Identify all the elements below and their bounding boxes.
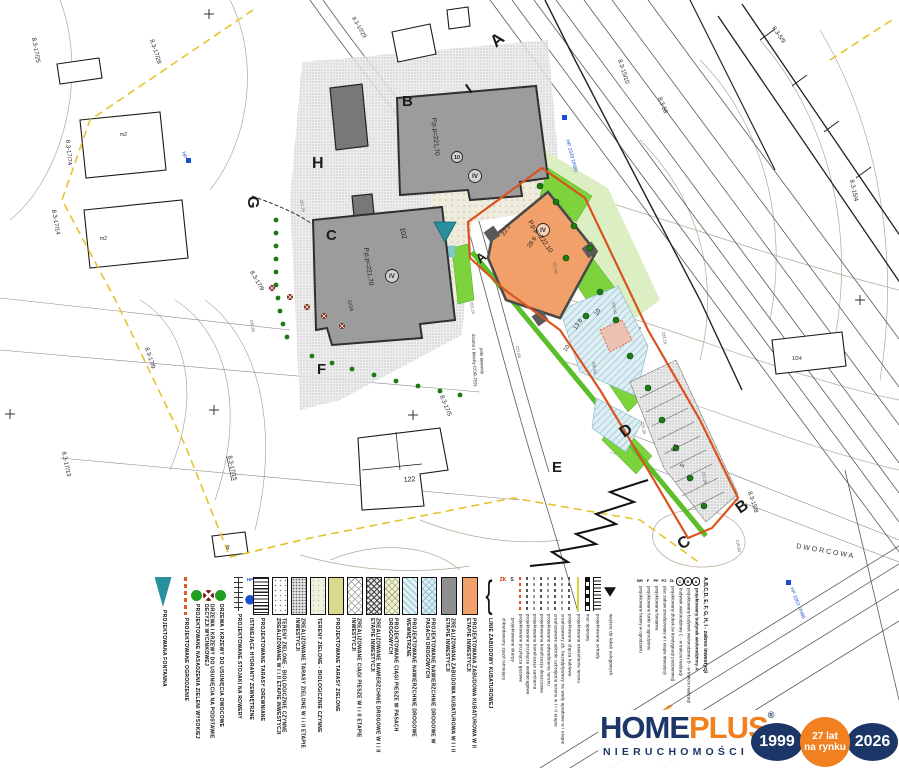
map-label: 8.3-17/25: [30, 37, 40, 64]
sym-bracket-icon: {: [485, 577, 494, 615]
sym-fountain-icon: [155, 577, 172, 607]
legend-label: PROJEKTOWANE TARASY ZIELONE: [333, 618, 339, 760]
legend-label: TERENY ZIELONE - BIOLOGICZNIE CZYNNE ZRE…: [274, 618, 285, 760]
legend-label: projektowane oświetlenie terenu: [576, 614, 581, 764]
map-label: B: [402, 93, 413, 110]
legend-label: ISTNIEJĄCE HYDRANTY ZEWNĘTRZNE: [247, 618, 253, 760]
legend-item: DRZEWA I KRZEWY DO USUNIĘCIA OWOCOWE: [212, 577, 228, 746]
map-label: m2: [120, 132, 127, 138]
legend-item: PROJEKTOWANA ZABUDOWA KUBATUROWA W II ET…: [462, 577, 478, 760]
map-label: IV: [540, 228, 546, 234]
legend-building-symbol: BR: [637, 577, 644, 584]
sw-icon: [402, 577, 418, 615]
legend-label: PROJEKTOWANE STOJAKI NA ROWERY: [235, 614, 241, 756]
map-label: 222.10: [469, 301, 476, 315]
sw-icon: [291, 577, 307, 615]
map-label: 8.3-1/229: [350, 16, 367, 39]
sym-dash-icon: [568, 577, 570, 611]
map-label: ściana z blachy COR-TEN: [471, 334, 478, 387]
map-label: 8.3-15/10: [616, 59, 630, 86]
legend-building-symbol: B: [684, 577, 693, 586]
legend-building-symbol: F: [645, 577, 652, 584]
map-label: 10: [454, 155, 460, 161]
legend-item: ZREALIZOWANE TARASY ZIELONE W I i II ETA…: [291, 577, 307, 760]
site-boundary-dashed-2: [830, 18, 895, 60]
legend-label: projektowane złącza kablowe: [567, 614, 572, 764]
legend-label: LINIE ZABUDOWY KUBATUROWEJ: [486, 618, 492, 760]
legend-item: TERENY ZIELONE - BIOLOGICZNIE CZYNNE: [310, 577, 326, 760]
sw-icon: [328, 577, 344, 615]
legend-item: ZREALIZOWANA ZABUDOWA KUBATUROWA W I i I…: [441, 577, 457, 760]
legend-item: PROJEKTOWANE NAWIERZCHNIE DROGOWE W PASA…: [421, 577, 437, 760]
map-label: 8.3-17/15: [226, 455, 237, 482]
sym-tree-fruit-icon: [215, 590, 226, 601]
parking-area: [630, 360, 738, 522]
registered-icon: ®: [768, 710, 774, 720]
legend-label: PROJEKTOWANE TARASY DREWNIANE: [258, 618, 264, 760]
boundary-letter: H: [312, 155, 324, 172]
legend-item: ZREALIZOWANE CIĄGI PIESZE W I i II ETAPI…: [347, 577, 363, 760]
legend-building-symbol: A: [692, 577, 701, 586]
sw-icon: [441, 577, 457, 615]
map-label: 1/24: [792, 356, 802, 362]
legend-item: TERENY ZIELONE - BIOLOGICZNIE CZYNNE ZRE…: [272, 577, 288, 760]
legend-label: PROJEKTOWANA ZABUDOWA KUBATUROWA W II ET…: [464, 618, 475, 760]
map-label: pole lawendy: [479, 348, 485, 375]
sym-fence-icon: [184, 577, 187, 615]
legend-label: PROJEKTOWANA FONTANNA: [160, 610, 166, 752]
zigzag-line: [530, 480, 648, 566]
legend-label: PROJEKTOWANE NAWIERZCHNIE DROGOWE W PASA…: [423, 618, 434, 760]
sw-icon: [384, 577, 400, 615]
map-label: 222.35: [640, 421, 647, 435]
map-label: 8.3-15/4: [848, 179, 859, 202]
badge-year-end: 2026: [847, 723, 898, 761]
legend-label: mur oporowy: [585, 614, 590, 764]
map-label: 8.3-17/13: [60, 451, 71, 478]
sw-icon: [272, 577, 288, 615]
badge-anniversary-line1: 27 lat: [812, 731, 838, 742]
sym-tri-icon: [604, 577, 616, 611]
map-label: C: [326, 227, 337, 244]
brand-subtitle: NIERUCHOMOŚCI: [603, 746, 748, 758]
map-label: m2: [100, 236, 107, 242]
legend-label: ZREALIZOWANE CIĄGI PIESZE W I i II ETAPI…: [349, 618, 360, 760]
legend-label: DRZEWA I KRZEWY DO USUNIĘCIA OWOCOWE: [217, 604, 223, 746]
legend-building-symbol: PF: [653, 577, 660, 584]
badge-anniversary-line2: na rynku: [804, 742, 846, 753]
map-label: 8.3-17/5: [438, 395, 452, 418]
map-label: IV: [389, 274, 395, 280]
sym-scalebar-icon: [585, 577, 590, 611]
map-label: 220.30: [249, 319, 256, 333]
boundary-letter: F: [317, 361, 326, 378]
legend-label: PROJEKTOWANE NASADZENIA ZIELENI WYSOKIEJ: [193, 604, 199, 746]
site-plan-page: 8.3-17/258.3-17/288.3-1/2298.3-17/748.3-…: [0, 0, 899, 768]
sw-icon: [421, 577, 437, 615]
line-yellow-icon: [577, 577, 579, 611]
legend-item: PROJEKTOWANA FONTANNA: [155, 577, 171, 752]
sw-icon: [253, 577, 269, 615]
map-label: 219.80: [735, 539, 742, 553]
map-label: 122: [404, 476, 416, 484]
legend-item: PROJEKTOWANE NAWIERZCHNIE DROGOWE WEWNĘT…: [402, 577, 418, 760]
legend-building-symbol: ŻŁ: [669, 577, 676, 584]
legend-label: PROJEKTOWANE OGRODZENIE: [182, 618, 188, 760]
legend-label: PROJEKTOWANE CIĄGI PIESZE W PASACH DROGO…: [386, 618, 397, 760]
brand-home: HOME: [600, 710, 689, 745]
badge-year-start: 1999: [751, 723, 803, 761]
legend-label: ZREALIZOWANA ZABUDOWA KUBATUROWA W I i I…: [443, 618, 454, 760]
map-label: 8.3-17/9: [143, 347, 156, 370]
sym-ruler-icon: [593, 577, 601, 611]
map-label: 8.3-5/9: [770, 26, 786, 45]
sw-icon: [366, 577, 382, 615]
legend-building-symbol: PZ: [661, 577, 668, 584]
map-label: IV: [472, 174, 478, 180]
legend-label: ZREALIZOWANE NAWIERZCHNIE DROGOWE W I i …: [368, 618, 379, 760]
legend-item: ZREALIZOWANE NAWIERZCHNIE DROGOWE W I i …: [366, 577, 382, 760]
legend-building-symbol: C: [676, 577, 685, 586]
legend-item: PROJEKTOWANE TARASY DREWNIANE: [253, 577, 269, 760]
boundary-letter: E: [552, 459, 562, 476]
map-label: DWORCOWA: [796, 543, 856, 560]
sw-icon: [347, 577, 363, 615]
map-label: 8.3-17/14: [50, 209, 60, 236]
map-label: 8.3-17/74: [64, 140, 72, 166]
map-label: 8.3-17/28: [148, 39, 162, 66]
homeplus-logo: HOMEPLUS® ´ NIERUCHOMOŚCI 1999 27 lat na…: [598, 710, 899, 768]
legend-label: TERENY ZIELONE - BIOLOGICZNIE CZYNNE: [315, 618, 321, 760]
map-label: 8.3-17/9: [248, 270, 265, 293]
sw-icon: [310, 577, 326, 615]
brand-wordmark: HOMEPLUS® ´: [600, 710, 773, 746]
badge-anniversary: 27 lat na rynku: [800, 717, 850, 767]
map-label: 223.15: [661, 331, 668, 345]
legend-item: PROJEKTOWANE CIĄGI PIESZE W PASACH DROGO…: [384, 577, 400, 760]
boundary-letter: G: [244, 196, 261, 208]
sw-icon: [462, 577, 478, 615]
legend-item: PROJEKTOWANE TARASY ZIELONE: [328, 577, 344, 760]
legend-label: ZREALIZOWANE TARASY ZIELONE W I i II ETA…: [293, 618, 304, 760]
legend-label: zlikwidowany zjazd istniejący: [501, 618, 506, 768]
map-label: 8.3-58: [656, 97, 668, 116]
legend-label: PROJEKTOWANE NAWIERZCHNIE DROGOWE WEWNĘT…: [404, 618, 415, 760]
